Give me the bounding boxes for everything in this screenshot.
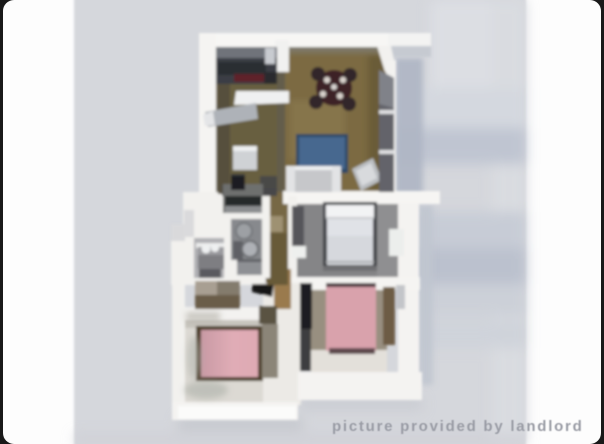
svg-text:picture provided by landlord: picture provided by landlord — [332, 418, 584, 435]
